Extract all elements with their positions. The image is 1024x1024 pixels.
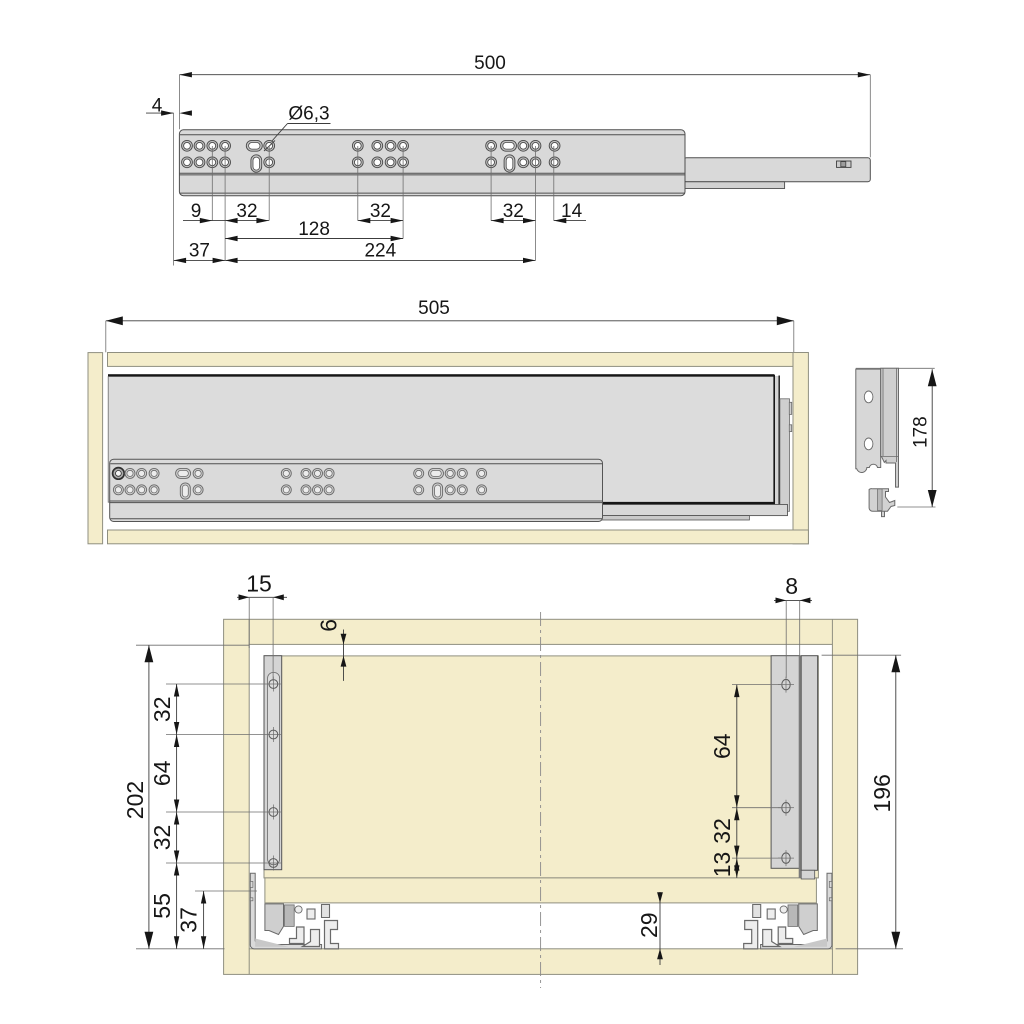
- svg-text:6: 6: [315, 619, 341, 632]
- svg-text:14: 14: [561, 201, 583, 222]
- svg-text:55: 55: [149, 893, 175, 919]
- svg-text:32: 32: [149, 697, 175, 723]
- svg-text:13: 13: [709, 852, 735, 878]
- svg-text:196: 196: [869, 774, 895, 812]
- svg-text:32: 32: [370, 201, 391, 222]
- svg-text:9: 9: [191, 201, 202, 222]
- svg-text:32: 32: [236, 201, 257, 222]
- svg-text:224: 224: [364, 241, 396, 262]
- svg-text:32: 32: [709, 818, 735, 844]
- svg-text:178: 178: [911, 416, 932, 448]
- svg-text:4: 4: [152, 96, 163, 117]
- svg-text:32: 32: [149, 825, 175, 851]
- svg-text:37: 37: [176, 907, 202, 933]
- svg-text:505: 505: [418, 298, 450, 319]
- svg-text:15: 15: [246, 571, 272, 597]
- svg-text:32: 32: [503, 201, 524, 222]
- svg-text:64: 64: [149, 760, 175, 786]
- svg-text:500: 500: [474, 53, 506, 74]
- svg-text:29: 29: [636, 912, 662, 938]
- svg-text:64: 64: [709, 733, 735, 759]
- svg-text:202: 202: [122, 781, 148, 819]
- svg-text:128: 128: [298, 219, 330, 240]
- svg-text:Ø6,3: Ø6,3: [288, 104, 329, 125]
- svg-text:8: 8: [785, 573, 798, 599]
- svg-text:37: 37: [189, 241, 210, 262]
